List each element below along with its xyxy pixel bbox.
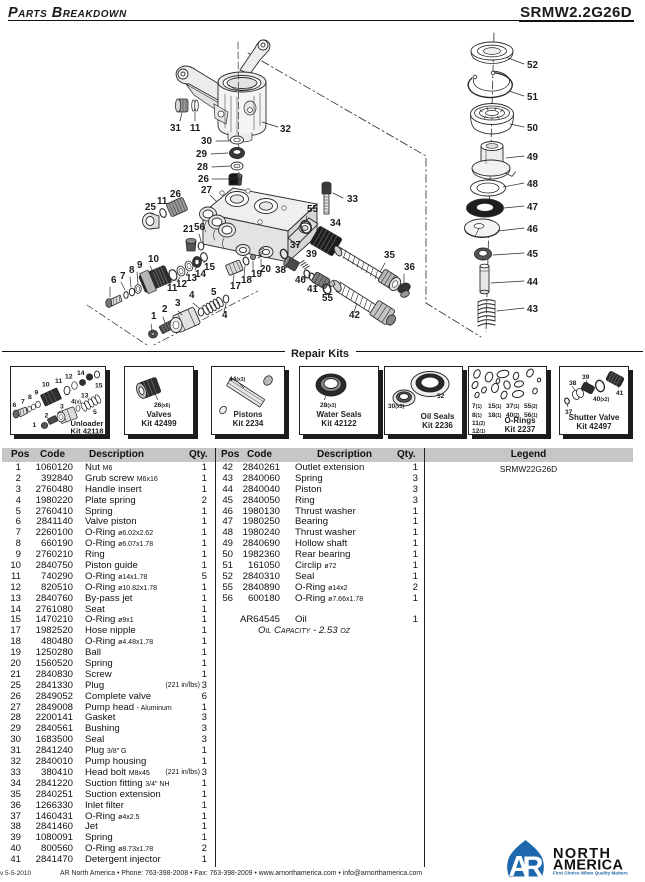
svg-text:32: 32: [280, 124, 291, 135]
svg-text:9: 9: [137, 260, 143, 271]
svg-text:11: 11: [55, 378, 62, 385]
svg-text:31: 31: [170, 123, 181, 134]
svg-text:41: 41: [307, 284, 318, 295]
svg-text:15(1): 15(1): [488, 403, 502, 410]
svg-text:39: 39: [582, 374, 590, 381]
svg-text:40: 40: [295, 275, 306, 286]
svg-text:41: 41: [616, 390, 624, 397]
svg-text:2: 2: [162, 304, 168, 315]
svg-text:4: 4: [189, 290, 195, 301]
svg-text:55(2): 55(2): [524, 403, 538, 410]
svg-text:47: 47: [527, 202, 538, 213]
svg-text:52: 52: [527, 60, 538, 71]
svg-text:14: 14: [77, 370, 85, 377]
svg-text:1: 1: [33, 422, 37, 429]
svg-text:26: 26: [170, 189, 181, 200]
svg-text:33: 33: [347, 194, 358, 205]
svg-text:10: 10: [148, 254, 159, 265]
svg-text:4: 4: [222, 310, 228, 321]
svg-text:5: 5: [93, 409, 97, 416]
svg-text:49: 49: [527, 152, 538, 163]
svg-text:38: 38: [275, 265, 286, 276]
svg-text:38: 38: [569, 380, 577, 387]
svg-text:6: 6: [13, 402, 17, 409]
svg-text:17: 17: [230, 281, 241, 292]
svg-text:7: 7: [120, 271, 126, 282]
svg-text:44(x3): 44(x3): [229, 376, 246, 383]
svg-text:R: R: [523, 852, 544, 881]
svg-text:8(1): 8(1): [472, 412, 482, 419]
svg-text:20: 20: [260, 264, 271, 275]
svg-text:15: 15: [204, 262, 215, 273]
svg-text:12: 12: [65, 374, 73, 381]
svg-text:27: 27: [201, 185, 212, 196]
svg-text:13: 13: [81, 393, 89, 400]
svg-text:9: 9: [35, 390, 39, 397]
svg-text:12(1): 12(1): [472, 428, 486, 433]
svg-text:44: 44: [527, 277, 538, 288]
svg-text:51: 51: [527, 92, 538, 103]
svg-text:39: 39: [306, 249, 317, 260]
svg-text:37(1): 37(1): [506, 403, 520, 410]
svg-text:11: 11: [190, 123, 201, 134]
svg-text:11: 11: [157, 196, 168, 207]
svg-text:28: 28: [197, 162, 208, 173]
svg-text:7(1): 7(1): [472, 403, 482, 410]
svg-text:8: 8: [129, 265, 135, 276]
svg-text:45: 45: [527, 249, 538, 260]
svg-text:26(x6): 26(x6): [154, 402, 171, 409]
svg-text:50: 50: [527, 123, 538, 134]
svg-text:7: 7: [21, 399, 25, 406]
svg-text:40(x2): 40(x2): [593, 396, 610, 403]
svg-text:29: 29: [196, 149, 207, 160]
svg-text:30: 30: [201, 136, 212, 147]
svg-text:55: 55: [307, 204, 318, 215]
svg-text:2: 2: [45, 413, 49, 420]
svg-text:48: 48: [527, 179, 538, 190]
svg-text:36: 36: [404, 262, 415, 273]
svg-text:3: 3: [175, 298, 181, 309]
svg-text:26: 26: [198, 174, 209, 185]
svg-text:10: 10: [42, 382, 50, 389]
svg-text:30(x3): 30(x3): [388, 403, 405, 410]
svg-text:11(2): 11(2): [472, 420, 485, 427]
svg-text:37: 37: [290, 240, 301, 251]
svg-text:1: 1: [151, 311, 157, 322]
svg-text:3: 3: [60, 404, 64, 411]
svg-text:First Choice When Quality Matt: First Choice When Quality Matters: [553, 871, 628, 876]
svg-text:43: 43: [527, 304, 538, 315]
svg-text:25: 25: [145, 202, 156, 213]
svg-text:34: 34: [330, 218, 341, 229]
svg-text:8: 8: [28, 394, 32, 401]
svg-text:28(x3): 28(x3): [320, 402, 337, 409]
svg-text:55: 55: [322, 293, 333, 304]
svg-text:21: 21: [183, 224, 194, 235]
svg-text:46: 46: [527, 224, 538, 235]
svg-text:15: 15: [95, 383, 103, 390]
svg-text:5: 5: [211, 287, 217, 298]
svg-text:35: 35: [384, 250, 395, 261]
svg-text:42: 42: [349, 310, 360, 321]
svg-text:Kit 42118: Kit 42118: [71, 427, 104, 435]
svg-text:4(x): 4(x): [71, 399, 81, 406]
svg-text:6: 6: [111, 275, 117, 286]
svg-text:52: 52: [437, 393, 445, 400]
svg-text:56: 56: [194, 222, 205, 233]
